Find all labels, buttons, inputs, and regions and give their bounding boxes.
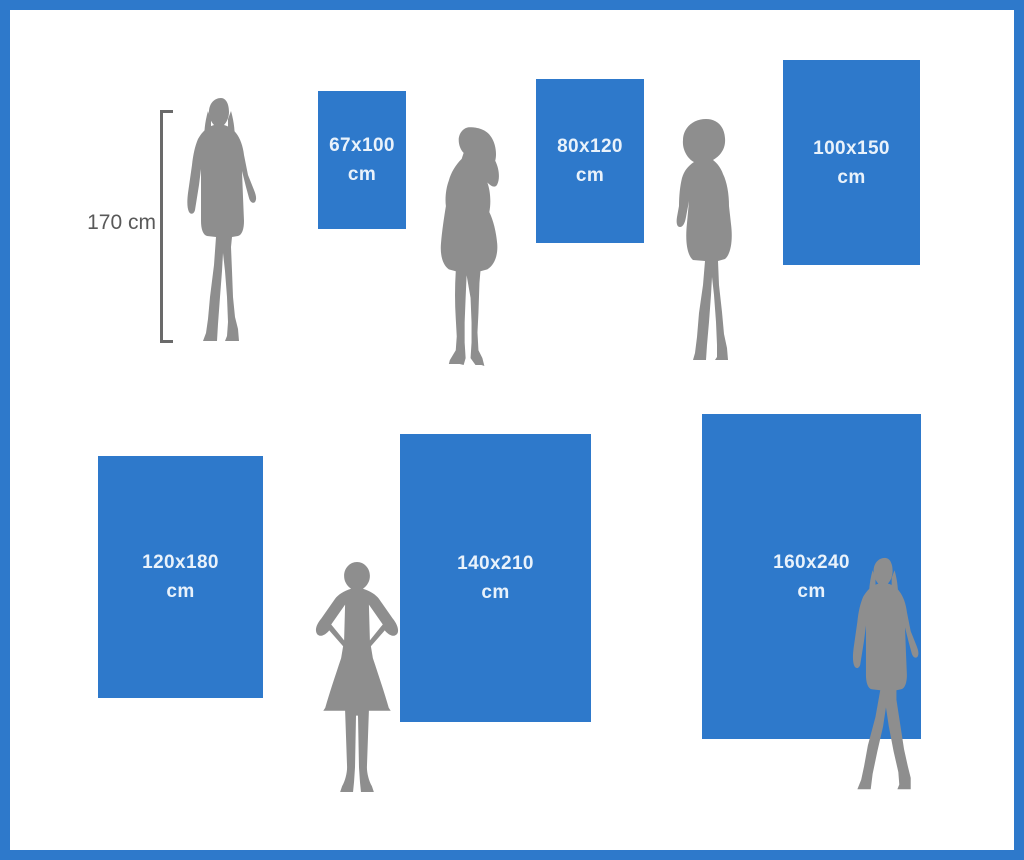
height-measure-label: 170 cm: [80, 211, 156, 235]
board-unit-text: cm: [142, 577, 219, 606]
board-size-text: 80x120: [557, 132, 623, 161]
woman-curly-hair-silhouette-icon: [661, 117, 751, 363]
board-unit-text: cm: [329, 160, 395, 189]
board-unit-text: cm: [557, 161, 623, 190]
board-size-text: 120x180: [142, 548, 219, 577]
woman-hands-on-hips-silhouette-icon: [306, 559, 408, 797]
board-label: 120x180 cm: [142, 548, 219, 606]
woman-side-profile-silhouette-icon: [438, 125, 512, 367]
board-label: 140x210 cm: [457, 549, 534, 607]
board-unit-text: cm: [813, 163, 890, 192]
board-label: 80x120 cm: [557, 132, 623, 190]
board-size-text: 140x210: [457, 549, 534, 578]
woman-standing-front-silhouette-icon: [175, 95, 267, 347]
board-label: 67x100 cm: [329, 131, 395, 189]
size-board-140x210: 140x210 cm: [400, 434, 591, 722]
height-bracket: [160, 110, 173, 343]
size-board-120x180: 120x180 cm: [98, 456, 263, 698]
board-size-text: 67x100: [329, 131, 395, 160]
board-label: 100x150 cm: [813, 134, 890, 192]
board-size-text: 100x150: [813, 134, 890, 163]
woman-standing-boots-silhouette-icon: [839, 555, 931, 795]
size-board-100x150: 100x150 cm: [783, 60, 920, 265]
board-unit-text: cm: [457, 578, 534, 607]
size-board-67x100: 67x100 cm: [318, 91, 406, 229]
size-board-80x120: 80x120 cm: [536, 79, 644, 243]
